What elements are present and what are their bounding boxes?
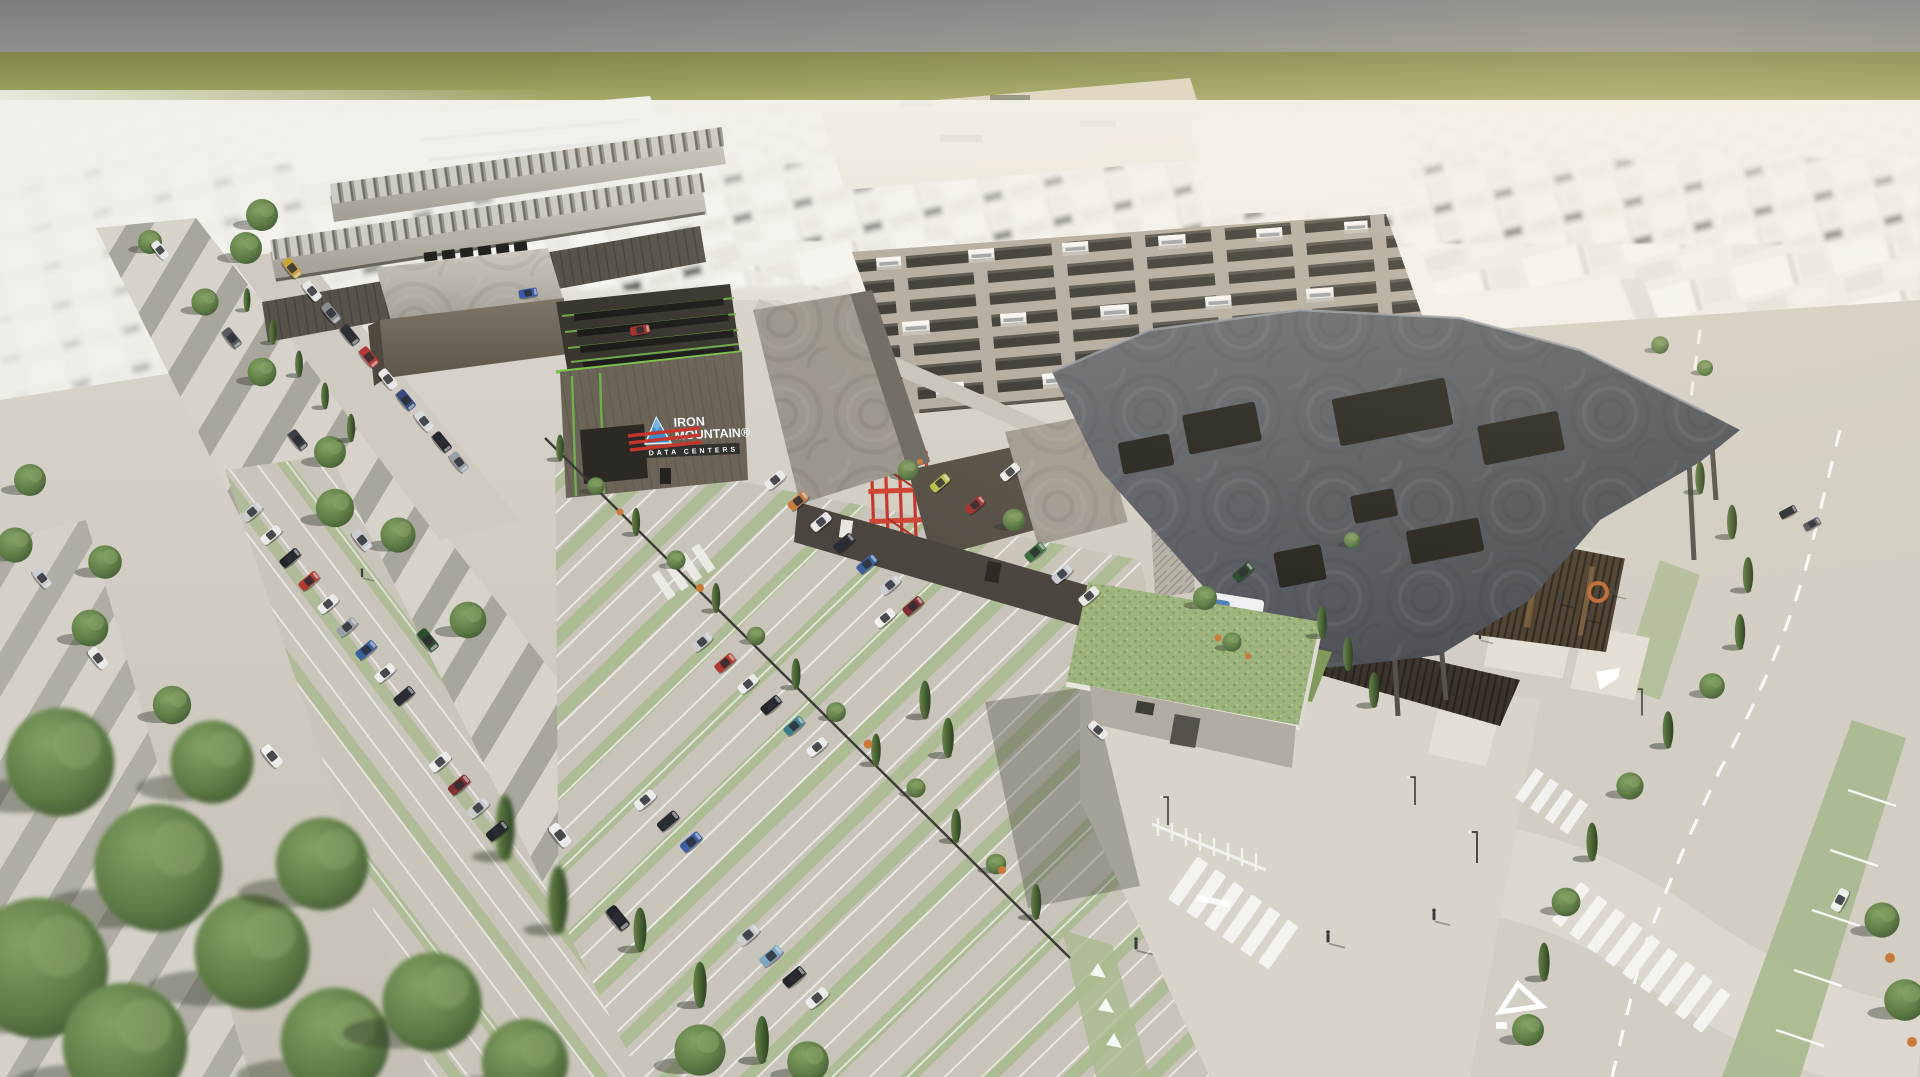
scene-canvas: IRON MOUNTAIN® DATA CENTERS <box>0 0 1920 1077</box>
atmosphere <box>0 0 1920 1077</box>
rendered-scene: IRON MOUNTAIN® DATA CENTERS <box>0 0 1920 1077</box>
warm-light-overlay <box>0 0 1920 1077</box>
